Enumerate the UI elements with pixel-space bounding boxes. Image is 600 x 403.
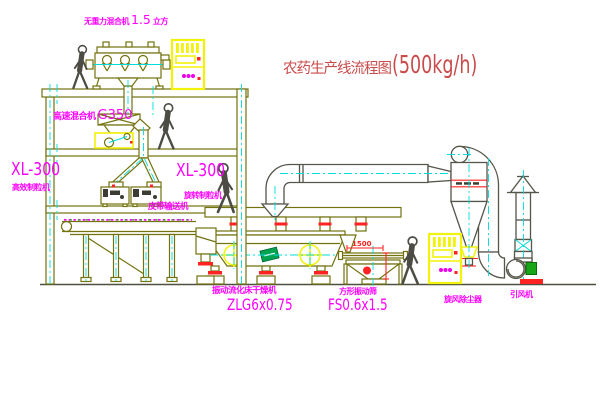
label-granulator-right-name: 旋转制粒机 xyxy=(184,192,222,200)
sieve-motor xyxy=(363,267,371,275)
worker-figure-1 xyxy=(73,46,87,88)
label-granulator-right-model: XL-300 xyxy=(176,162,225,180)
vibration-mounts xyxy=(206,266,330,284)
control-cabinet-2 xyxy=(429,234,461,283)
induced-draft-fan xyxy=(507,258,544,284)
dryer-inlet-box xyxy=(196,228,216,284)
fan-motor xyxy=(526,263,537,275)
granulator-left xyxy=(101,182,129,207)
drawing-title: 农药生产线流程图 (500kg/h) xyxy=(283,50,514,79)
y-chute xyxy=(112,158,160,184)
label-gravity-mixer: 无重力混合机 1.5 立方 xyxy=(84,14,168,27)
label-granulator-left-name: 高效制粒机 xyxy=(12,184,50,192)
label-fan: 引风机 xyxy=(510,291,533,299)
belt-conveyor xyxy=(62,220,197,283)
label-sieve-model: FS0.6x1.5 xyxy=(328,297,388,313)
stack-rain-cap xyxy=(511,176,536,193)
label-dryer-model: ZLG6x0.75 xyxy=(227,297,293,313)
title-text: 农药生产线流程图 xyxy=(283,57,391,78)
label-belt-conveyor: 皮带输送机 xyxy=(148,203,188,212)
drawing-canvas: 农药生产线流程图 (500kg/h) 无重力混合机 1.5 立方 高速混合机 G… xyxy=(0,0,600,403)
label-highspeed-mixer: 高速混合机 G350 xyxy=(53,109,132,122)
control-cabinet-1 xyxy=(172,40,204,89)
dimension-1500: 1500 xyxy=(352,241,371,248)
title-capacity: (500kg/h) xyxy=(392,50,477,79)
worker-figure-4 xyxy=(403,237,418,283)
duct-reducer xyxy=(428,166,451,182)
label-cyclone: 旋风除尘器 xyxy=(444,296,482,304)
worker-figure-2 xyxy=(159,104,174,149)
label-granulator-left-model: XL-300 xyxy=(11,161,60,179)
fan-base xyxy=(520,279,543,284)
building-right-column xyxy=(237,84,246,284)
